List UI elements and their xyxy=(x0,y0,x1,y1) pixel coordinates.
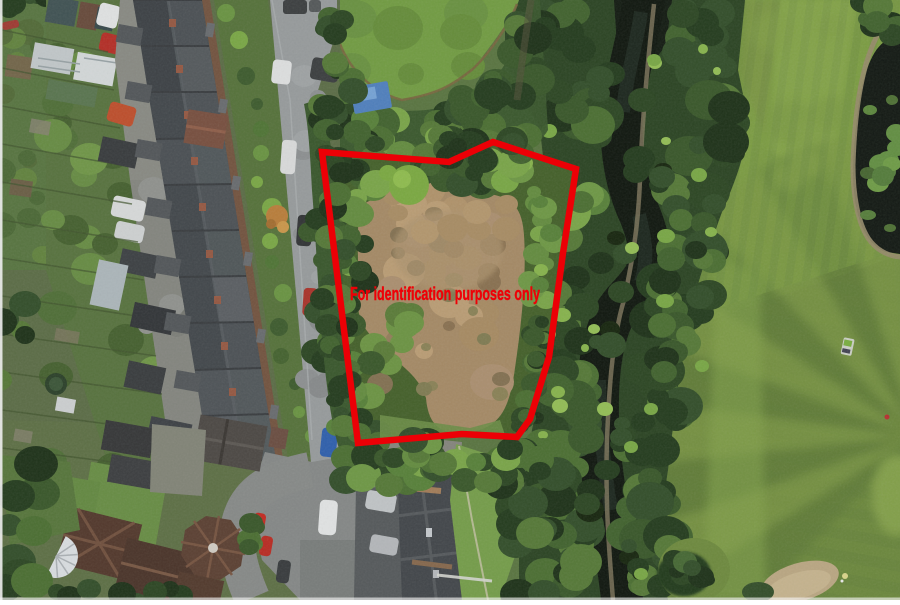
svg-text:For identification purposes on: For identification purposes only xyxy=(350,283,540,304)
